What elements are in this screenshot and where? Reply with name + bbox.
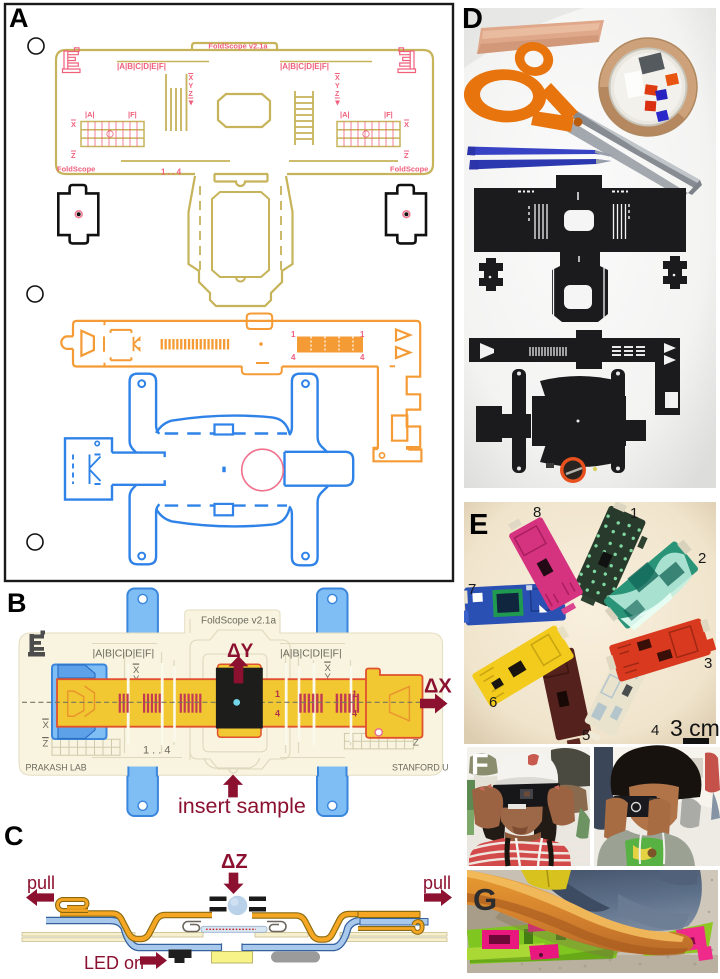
svg-text:PRAKASH LAB: PRAKASH LAB xyxy=(26,763,87,773)
svg-text:Y: Y xyxy=(189,83,194,90)
svg-text:1: 1 xyxy=(352,689,357,699)
svg-text:6: 6 xyxy=(489,694,497,711)
svg-text:Z: Z xyxy=(43,739,49,750)
svg-text:LED on: LED on xyxy=(84,953,144,973)
svg-text:FoldScope: FoldScope xyxy=(390,165,428,174)
svg-text:3 cm: 3 cm xyxy=(670,715,720,741)
svg-text:5: 5 xyxy=(582,727,590,744)
svg-text:FoldScope v2.1a: FoldScope v2.1a xyxy=(208,42,268,51)
svg-text:Z: Z xyxy=(413,738,419,749)
svg-text:4: 4 xyxy=(360,353,365,362)
svg-text:1: 1 xyxy=(360,330,365,339)
svg-text:1: 1 xyxy=(291,330,296,339)
svg-text:Z: Z xyxy=(189,91,194,98)
svg-text:1: 1 xyxy=(275,689,280,699)
svg-text:8: 8 xyxy=(533,504,541,521)
svg-text:FoldScope v2.1a: FoldScope v2.1a xyxy=(201,616,276,627)
svg-text:4: 4 xyxy=(275,709,280,719)
svg-text:A: A xyxy=(9,3,29,33)
svg-text:insert sample: insert sample xyxy=(178,794,306,818)
svg-text:3: 3 xyxy=(704,655,712,672)
svg-text:Z: Z xyxy=(335,91,340,98)
svg-text:Y: Y xyxy=(335,83,340,90)
svg-text:F: F xyxy=(471,749,489,781)
svg-text:X: X xyxy=(335,75,340,82)
svg-text:B: B xyxy=(7,588,27,618)
svg-text:X: X xyxy=(189,75,194,82)
svg-text:|A|B|C|D|E|F|: |A|B|C|D|E|F| xyxy=(280,648,342,660)
svg-text:Z: Z xyxy=(404,151,409,160)
svg-text:E: E xyxy=(469,509,488,541)
svg-text:X: X xyxy=(71,120,76,129)
svg-text:4: 4 xyxy=(651,722,659,739)
svg-text:|A|B|C|D|E|F|: |A|B|C|D|E|F| xyxy=(93,648,155,660)
svg-text:ΔZ: ΔZ xyxy=(221,851,248,873)
svg-text:pull: pull xyxy=(423,873,451,893)
svg-text:2: 2 xyxy=(698,550,706,567)
svg-text:D: D xyxy=(462,3,483,35)
svg-text:4: 4 xyxy=(352,709,357,719)
svg-text:pull: pull xyxy=(27,873,55,893)
svg-text:1 . . 4: 1 . . 4 xyxy=(161,168,182,177)
svg-text:X: X xyxy=(404,120,409,129)
svg-text:|F|: |F| xyxy=(128,110,137,119)
svg-text:|A|B|C|D|E|F|: |A|B|C|D|E|F| xyxy=(280,62,329,71)
svg-text:C: C xyxy=(4,821,24,851)
svg-text:1: 1 xyxy=(630,505,638,522)
svg-text:Z: Z xyxy=(71,151,76,160)
svg-text:ΔX: ΔX xyxy=(424,676,452,698)
svg-text:X: X xyxy=(43,720,50,731)
svg-text:G: G xyxy=(473,882,497,917)
svg-text:FoldScope: FoldScope xyxy=(57,165,95,174)
svg-text:|A|: |A| xyxy=(85,110,95,119)
svg-text:|A|: |A| xyxy=(340,110,350,119)
svg-text:4: 4 xyxy=(291,353,296,362)
svg-text:|A|B|C|D|E|F|: |A|B|C|D|E|F| xyxy=(117,62,166,71)
svg-text:7: 7 xyxy=(468,581,476,598)
svg-text:|F|: |F| xyxy=(384,110,393,119)
svg-text:1 . . 4: 1 . . 4 xyxy=(143,745,171,757)
svg-text:STANFORD U: STANFORD U xyxy=(392,763,449,773)
